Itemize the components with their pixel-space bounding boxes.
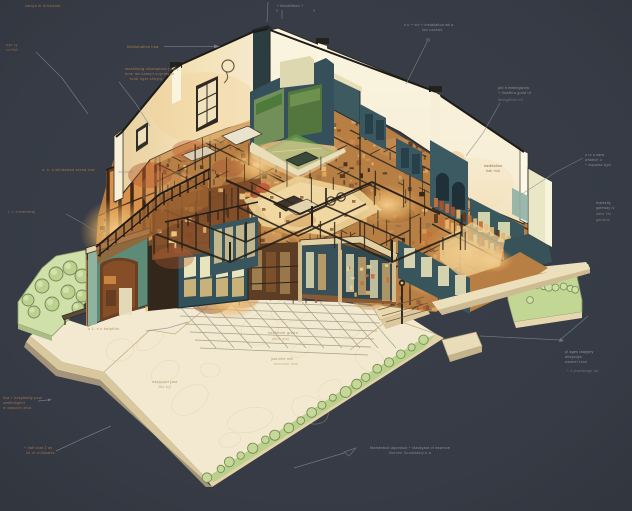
svg-text:u. n. ii windowed arena row: u. n. ii windowed arena row [42, 168, 95, 172]
svg-text:u rv u varw: u rv u varw [585, 153, 605, 157]
svg-text:vestibule green: vestibule green [268, 330, 298, 335]
svg-text:just mile mill: just mile mill [270, 357, 293, 361]
svg-text:gardens: gardens [596, 218, 610, 222]
svg-text:hall mid: hall mid [486, 169, 500, 173]
svg-text:+ flowthru guild ld: + flowthru guild ld [498, 91, 531, 95]
svg-text:gateway lv: gateway lv [596, 206, 615, 210]
svg-text:twn casewk: twn casewk [422, 28, 443, 32]
svg-text:thornes' floodstamp-b w: thornes' floodstamp-b w [389, 451, 432, 455]
svg-text:u 1: n n kntpthin: u 1: n n kntpthin [88, 327, 119, 331]
svg-text:wellthingifor: wellthingifor [3, 401, 26, 405]
svg-text:thatestiy: thatestiy [596, 201, 611, 205]
svg-text:+ bldublilbwu +: + bldublilbwu + [277, 4, 303, 8]
svg-text:+ half cost 2 on: + half cost 2 on [24, 446, 52, 450]
svg-text:w wayside deck: w wayside deck [3, 406, 32, 410]
svg-text:warmer farm: warmer farm [565, 360, 587, 364]
svg-text:l. r. h merretry: l. r. h merretry [8, 210, 35, 214]
svg-text:pl ages raapyey: pl ages raapyey [565, 350, 593, 354]
svg-text:throughhall loft: throughhall loft [498, 98, 523, 102]
svg-text:+ wayatas type: + wayatas type [585, 163, 611, 167]
svg-text:ilva + hospitality pool: ilva + hospitality pool [3, 396, 42, 400]
svg-text:stock dwy: stock dwy [272, 337, 289, 341]
svg-text:total tigar shsylly: total tigar shsylly [130, 77, 163, 81]
svg-text:masliliang milamplrea ( ap ): masliliang milamplrea ( ap ) [125, 67, 179, 71]
svg-text:0d of childsafes: 0d of childsafes [26, 451, 55, 455]
svg-text:384 sqf: 384 sqf [158, 385, 171, 389]
svg-text:wyv vy: wyv vy [6, 43, 18, 47]
svg-text:ilaulya 4r brickwork: ilaulya 4r brickwork [25, 4, 61, 8]
svg-text:pht trimmingwork: pht trimmingwork [498, 86, 529, 90]
svg-text:rooffall: rooffall [6, 48, 18, 52]
svg-text:+ 4 prachtvoge rat: + 4 prachtvoge rat [567, 369, 598, 373]
svg-text:westcourt yard: westcourt yard [152, 380, 178, 384]
svg-text:forecourt lane: forecourt lane [274, 362, 298, 366]
svg-text:u u + vrv + installation wk a: u u + vrv + installation wk a [404, 23, 453, 27]
svg-text:blblilahative hna: blblilahative hna [127, 45, 159, 49]
svg-text:thamesfoot aqueduct + stackyar: thamesfoot aqueduct + stackyard of essen… [370, 446, 450, 450]
svg-text:alloyedys: alloyedys [565, 355, 582, 359]
svg-text:meditation: meditation [484, 164, 503, 168]
svg-text:tune dw liasept supratyna: tune dw liasept supratyna [125, 72, 175, 76]
svg-text:lathe 2hr: lathe 2hr [596, 212, 612, 216]
svg-text:whatton u: whatton u [585, 158, 602, 162]
